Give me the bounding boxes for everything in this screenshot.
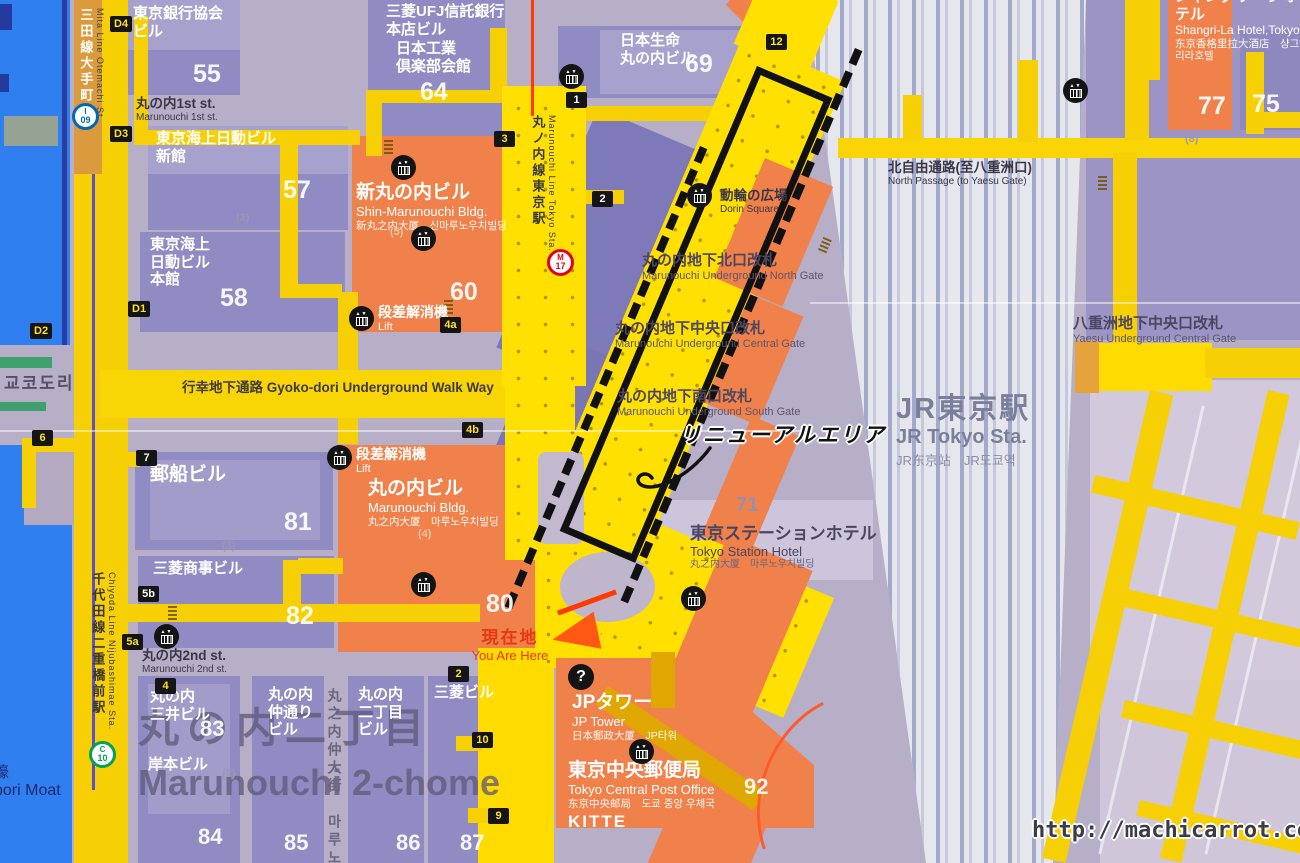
badge-mita-i09-number: 09 — [80, 116, 90, 125]
badge-marunouchi-m17-number: 17 — [555, 262, 565, 271]
label-num-75-jp: 75 — [1252, 90, 1280, 120]
label-mita-v-en: Mita Line Otemachi St. — [94, 8, 105, 178]
label-num-57: 57 — [283, 176, 311, 206]
label-gate-c: 丸の内地下中央口改札Marunouchi Underground Central… — [615, 320, 805, 351]
path — [366, 94, 382, 156]
label-nakadori: 丸の内 仲通り ビル — [268, 686, 313, 739]
label-yusen: 郵船ビル — [150, 464, 226, 486]
yaesu-gate-block — [1075, 341, 1099, 393]
elevator-cab — [418, 237, 430, 246]
label-kogyo-jp: 日本工業 倶楽部会館 — [396, 40, 471, 75]
label-kaijo-hon: 東京海上 日動ビル 本館 — [150, 236, 210, 289]
label-shangrila-en: Shangri-La Hotel,Tokyo — [1175, 23, 1300, 37]
yaesu-gate-corridor — [1097, 343, 1212, 391]
label-num-60-jp: 60 — [450, 278, 478, 308]
label-lift-a-jp: 段差解消機 — [378, 304, 448, 321]
label-st2-jp: 丸の内2nd st. — [142, 648, 227, 664]
label-num-75: 75 — [1252, 90, 1280, 120]
path — [298, 558, 343, 574]
exit-marker-m-d1: D1 — [128, 301, 150, 317]
label-mita-v: 三田線大手町駅Mita Line Otemachi St. — [78, 8, 105, 178]
exit-marker-m-d3: D3 — [110, 126, 132, 142]
label-jr: JR東京駅JR Tokyo Sta.JR东京站 JR도쿄역 — [896, 392, 1030, 468]
label-num-60: 60 — [450, 278, 478, 308]
exit-marker-m-7: 7 — [136, 450, 157, 466]
elevator-icon-11: ▲▼ — [154, 624, 179, 649]
label-shoji-jp: 三菱商事ビル — [153, 560, 243, 578]
label-mita-v-jp: 三田線大手町駅 — [78, 8, 93, 178]
label-paren8: (8) — [1185, 133, 1198, 146]
label-marubldg-jp: 丸の内ビル — [368, 478, 499, 500]
label-naka-street: 丸之内仲大街 마루노우치나카도리 — [326, 688, 343, 863]
label-gate-y-jp: 八重洲地下中央口改札 — [1073, 315, 1236, 333]
green-strip — [0, 402, 46, 411]
label-renewal: リニューアルエリア — [680, 424, 886, 449]
moat-water-top — [0, 0, 70, 345]
north-passage-corridor — [838, 138, 1300, 158]
elevator-cab — [566, 75, 578, 84]
label-st1: 丸の内1st st.Marunouchi 1st st. — [136, 96, 218, 124]
label-yusen-jp: 郵船ビル — [150, 464, 226, 486]
label-num-87-jp: 87 — [460, 830, 484, 856]
label-nissei: 日本生命 丸の内ビル — [620, 32, 695, 67]
label-gate-y: 八重洲地下中央口改札Yaesu Underground Central Gate — [1073, 315, 1236, 346]
elevator-icon-1: ▲▼ — [391, 155, 416, 180]
badge-chiyoda-c10-number: 10 — [97, 754, 107, 763]
label-num-87: 87 — [460, 830, 484, 856]
label-shinmaru-en: Shin-Marunouchi Bldg. — [356, 204, 507, 219]
label-kaijo-shin-jp: 東京海上日動ビル 新館 — [156, 130, 276, 165]
elevator-icon-7: ▲▼ — [687, 183, 712, 208]
label-jptower-jp: JPタワー — [572, 692, 677, 714]
label-paren3-jp: (3) — [222, 540, 235, 553]
label-num-82: 82 — [286, 602, 314, 632]
exit-marker-m-5a: 5a — [122, 634, 143, 650]
label-lift-b-jp: 段差解消機 — [356, 446, 426, 463]
elevator-icon-5: ▲▼ — [411, 572, 436, 597]
path — [584, 106, 724, 121]
label-dorin-en: Dorin Square — [720, 204, 788, 216]
label-num-86: 86 — [396, 830, 420, 856]
label-marubldg-en: Marunouchi Bldg. — [368, 500, 499, 515]
label-num-58-jp: 58 — [220, 284, 248, 314]
path — [1140, 0, 1160, 80]
label-yah-en: You Are Here — [455, 648, 565, 663]
exit-marker-m-4b: 4b — [462, 422, 483, 438]
label-num-58: 58 — [220, 284, 248, 314]
label-moat-en: bori Moat — [0, 782, 61, 801]
exit-marker-m-2b: 2 — [448, 666, 469, 682]
information-icon: ? — [568, 664, 594, 690]
label-kishimoto-jp: 岸本ビル — [148, 756, 208, 774]
label-north-passage-en: North Passage (to Yaesu Gate) — [888, 176, 1032, 188]
label-num-83-jp: 83 — [200, 716, 224, 742]
label-num-64: 64 — [420, 78, 448, 108]
navy-shape — [0, 4, 12, 30]
label-kaijo-hon-jp: 東京海上 日動ビル 本館 — [150, 236, 210, 289]
label-chiyoda-v-en: Chiyoda Line Nijubashimae Sta. — [106, 572, 117, 752]
label-chiyoda-v: 千代田線二重橋前駅Chiyoda Line Nijubashimae Sta. — [90, 572, 117, 752]
label-gate-y-en: Yaesu Underground Central Gate — [1073, 333, 1236, 346]
label-num-85: 85 — [284, 830, 308, 856]
badge-mita-i09: I09 — [72, 103, 99, 130]
label-num-86-jp: 86 — [396, 830, 420, 856]
label-yah: 現在地You Are Here — [455, 628, 565, 663]
label-yah-jp: 現在地 — [455, 628, 565, 648]
label-nakadori-jp: 丸の内 仲通り ビル — [268, 686, 313, 739]
label-mitsubishi: 三菱ビル — [434, 684, 494, 702]
label-gyoko-jp: 行幸地下通路 Gyoko-dori Underground Walk Way — [182, 380, 494, 396]
stairs-icon — [384, 140, 393, 154]
label-maruline-v-en: Marunouchi Line Tokyo Sta. — [546, 115, 557, 265]
path — [280, 284, 342, 298]
station-area-map: 東京銀行協会 ビル55三菱UFJ信託銀行 本店ビル日本工業 倶楽部会館64日本生… — [0, 0, 1300, 863]
exit-marker-m-4a: 4a — [440, 317, 461, 333]
label-paren4-jp: (4) — [418, 528, 431, 541]
elevator-cab — [356, 317, 368, 326]
label-hotel-en: Tokyo Station Hotel — [690, 544, 877, 559]
exit-marker-m-2: 2 — [592, 191, 613, 207]
label-paren2a: (2) — [236, 212, 249, 225]
badge-chiyoda-c10: C10 — [89, 741, 116, 768]
label-num-84-jp: 84 — [198, 824, 222, 850]
label-st2: 丸の内2nd st.Marunouchi 2nd st. — [142, 648, 227, 676]
label-postoffice-sub: 东京中央邮局 도쿄 중앙 우체국 — [568, 798, 715, 810]
path — [280, 142, 298, 292]
shin-marunouchi-bldg — [352, 136, 520, 332]
path — [1018, 60, 1038, 142]
label-num-64-jp: 64 — [420, 78, 448, 108]
label-num-77: 77 — [1198, 92, 1226, 122]
label-postoffice-en: Tokyo Central Post Office — [568, 782, 715, 797]
elevator-icon-4: ▲▼ — [327, 445, 352, 470]
label-lift-b-en: Lift — [356, 463, 426, 476]
label-gyoko-kr: 교코도리 — [4, 374, 75, 394]
label-num-55-jp: 55 — [193, 60, 221, 90]
label-num-82-jp: 82 — [286, 602, 314, 632]
elevator-cab — [161, 635, 173, 644]
label-gate-s-en: Marunouchi Underground South Gate — [617, 406, 800, 419]
label-shinmaru: 新丸の内ビルShin-Marunouchi Bldg.新丸之内大厦 신마루노우치… — [356, 182, 507, 232]
label-bank-assoc-jp: 東京銀行協会 ビル — [133, 5, 223, 40]
label-lift-a-en: Lift — [378, 321, 448, 334]
label-num-80: 80 — [486, 590, 514, 620]
exit-marker-m-1: 1 — [566, 92, 587, 108]
label-hotel-jp: 東京ステーションホテル — [690, 524, 877, 544]
label-nichome: 丸の内 二丁目 ビル — [358, 686, 403, 739]
label-watermark-jp: http://machicarrot.com — [1032, 818, 1300, 844]
label-dorin: 動輪の広場Dorin Square — [720, 188, 788, 216]
label-naka-street-jp: 丸之内仲大街 마루노우치나카도리 — [326, 688, 343, 863]
label-jr-en: JR Tokyo Sta. — [896, 426, 1030, 450]
label-paren4: (4) — [418, 528, 431, 541]
navy-line — [62, 0, 67, 345]
label-st2-en: Marunouchi 2nd st. — [142, 664, 227, 676]
label-dorin-jp: 動輪の広場 — [720, 188, 788, 204]
label-jr-sub: JR东京站 JR도쿄역 — [896, 453, 1030, 468]
elevator-cab — [334, 456, 346, 465]
path — [22, 438, 36, 508]
exit-marker-m-5b: 5b — [138, 586, 159, 602]
label-maruline-v-jp: 丸ノ内線東京駅 — [530, 115, 545, 265]
label-shinmaru-jp: 新丸の内ビル — [356, 182, 507, 204]
label-num-92-jp: 92 — [744, 774, 768, 800]
label-num-92: 92 — [744, 774, 768, 800]
label-marubldg-sub: 丸之内大厦 마루노우치빌딩 — [368, 516, 499, 528]
label-jptower-sub: 日本郵政大厦 JP타워 — [572, 730, 677, 742]
path — [1205, 348, 1300, 378]
label-gyoko-kr-jp: 교코도리 — [4, 374, 75, 394]
label-paren3: (3) — [222, 540, 235, 553]
elevator-cab — [398, 166, 410, 175]
label-paren2a-jp: (2) — [236, 212, 249, 225]
label-watermark: http://machicarrot.com — [1032, 818, 1300, 844]
label-num-83: 83 — [200, 716, 224, 742]
label-num-85-jp: 85 — [284, 830, 308, 856]
navy-shape — [0, 74, 9, 92]
label-moat-jp: 濠 — [0, 764, 61, 782]
label-gate-n-en: Marunouchi Underground North Gate — [642, 270, 824, 283]
label-nissei-jp: 日本生命 丸の内ビル — [620, 32, 695, 67]
label-lift-b: 段差解消機Lift — [356, 446, 426, 475]
panel-seam — [810, 302, 1300, 304]
label-gate-n: 丸の内地下北口改札Marunouchi Underground North Ga… — [642, 252, 824, 283]
label-north-passage: 北自由通路(至八重洲口)North Passage (to Yaesu Gate… — [888, 160, 1032, 188]
label-jptower: JPタワーJP Tower日本郵政大厦 JP타워 — [572, 692, 677, 742]
label-hotel: 東京ステーションホテルTokyo Station Hotel丸之内大厦 마루노우… — [690, 524, 877, 571]
label-num-71-jp: 71 — [736, 494, 758, 518]
elevator-icon-6: ▲▼ — [559, 64, 584, 89]
label-jptower-en: JP Tower — [572, 714, 677, 729]
label-shangrila: シャングリ・ラ ホテルShangri-La Hotel,Tokyo东京香格里拉大… — [1175, 0, 1300, 62]
label-kishimoto: 岸本ビル — [148, 756, 208, 774]
path — [100, 452, 140, 467]
label-nichome-jp: 丸の内 二丁目 ビル — [358, 686, 403, 739]
label-num-81-jp: 81 — [284, 508, 312, 538]
elevator-icon-8: ▲▼ — [1063, 78, 1088, 103]
label-num-71: 71 — [736, 494, 758, 518]
label-renewal-jp: リニューアルエリア — [680, 424, 886, 449]
pier — [4, 116, 58, 146]
exit-marker-m-6: 6 — [32, 430, 53, 446]
elevator-cab — [688, 597, 700, 606]
label-num-69-jp: 69 — [685, 50, 713, 80]
label-paren2b-jp: (2) — [222, 768, 235, 781]
exit-marker-m-10: 10 — [472, 732, 493, 748]
label-gate-s-jp: 丸の内地下南口改札 — [617, 388, 800, 406]
label-ufj: 三菱UFJ信託銀行 本店ビル — [386, 3, 504, 38]
label-ufj-jp: 三菱UFJ信託銀行 本店ビル — [386, 3, 504, 38]
label-gate-c-en: Marunouchi Underground Central Gate — [615, 338, 805, 351]
label-chiyoda-v-jp: 千代田線二重橋前駅 — [90, 572, 105, 752]
label-st1-en: Marunouchi 1st st. — [136, 112, 218, 124]
exit-marker-m-12: 12 — [766, 34, 787, 50]
label-paren5-jp: (5) — [390, 226, 403, 239]
path — [903, 95, 922, 140]
label-paren8-jp: (8) — [1185, 133, 1198, 146]
green-strip — [0, 357, 52, 368]
label-bank-assoc: 東京銀行協会 ビル — [133, 5, 223, 40]
label-num-55: 55 — [193, 60, 221, 90]
label-num-80-jp: 80 — [486, 590, 514, 620]
exit-marker-m-d2: D2 — [30, 323, 52, 339]
elevator-cab — [418, 583, 430, 592]
label-num-81: 81 — [284, 508, 312, 538]
label-paren5: (5) — [390, 226, 403, 239]
exit-marker-m-3: 3 — [494, 131, 515, 147]
exit-marker-m-9: 9 — [488, 808, 509, 824]
elevator-cab — [694, 194, 706, 203]
label-marubldg: 丸の内ビルMarunouchi Bldg.丸之内大厦 마루노우치빌딩 — [368, 478, 499, 528]
elevator-icon-3: ▲▼ — [349, 306, 374, 331]
label-num-77-jp: 77 — [1198, 92, 1226, 122]
label-postoffice-sub2: KITTE — [568, 812, 715, 832]
label-paren2b: (2) — [222, 768, 235, 781]
label-lift-a: 段差解消機Lift — [378, 304, 448, 333]
label-gate-s: 丸の内地下南口改札Marunouchi Underground South Ga… — [617, 388, 800, 419]
stairs-icon — [168, 606, 177, 620]
red-line — [531, 0, 534, 116]
elevator-icon-9: ▲▼ — [681, 586, 706, 611]
label-num-57-jp: 57 — [283, 176, 311, 206]
elevator-icon-2: ▲▼ — [411, 226, 436, 251]
label-shoji: 三菱商事ビル — [153, 560, 243, 578]
label-num-84: 84 — [198, 824, 222, 850]
label-num-69: 69 — [685, 50, 713, 80]
label-gyoko: 行幸地下通路 Gyoko-dori Underground Walk Way — [182, 380, 494, 396]
label-maruline-v: 丸ノ内線東京駅Marunouchi Line Tokyo Sta. — [530, 115, 557, 265]
label-north-passage-jp: 北自由通路(至八重洲口) — [888, 160, 1032, 176]
label-mitsubishi-jp: 三菱ビル — [434, 684, 494, 702]
label-shangrila-jp: シャングリ・ラ ホテル — [1175, 0, 1300, 23]
label-gate-c-jp: 丸の内地下中央口改札 — [615, 320, 805, 338]
label-kogyo: 日本工業 倶楽部会館 — [396, 40, 471, 75]
elevator-icon-10: ▲▼ — [629, 739, 654, 764]
label-kaijo-shin: 東京海上日動ビル 新館 — [156, 130, 276, 165]
exit-marker-m-4: 4 — [155, 678, 176, 694]
label-gate-n-jp: 丸の内地下北口改札 — [642, 252, 824, 270]
renewal-arrow — [630, 442, 722, 514]
label-st1-jp: 丸の内1st st. — [136, 96, 218, 112]
elevator-cab — [1070, 89, 1082, 98]
label-postoffice: 東京中央郵便局Tokyo Central Post Office东京中央邮局 도… — [568, 760, 715, 832]
elevator-cab — [636, 750, 648, 759]
label-shangrila-sub: 东京香格里拉大酒店 샹그리라호텔 — [1175, 38, 1300, 63]
label-jr-jp: JR東京駅 — [896, 392, 1030, 426]
badge-marunouchi-m17: M17 — [547, 249, 574, 276]
stairs-icon — [1098, 176, 1107, 192]
exit-marker-m-d4: D4 — [110, 16, 132, 32]
label-hotel-sub: 丸之内大厦 마루노우치빌딩 — [690, 559, 877, 571]
label-moat: 濠bori Moat — [0, 764, 61, 801]
